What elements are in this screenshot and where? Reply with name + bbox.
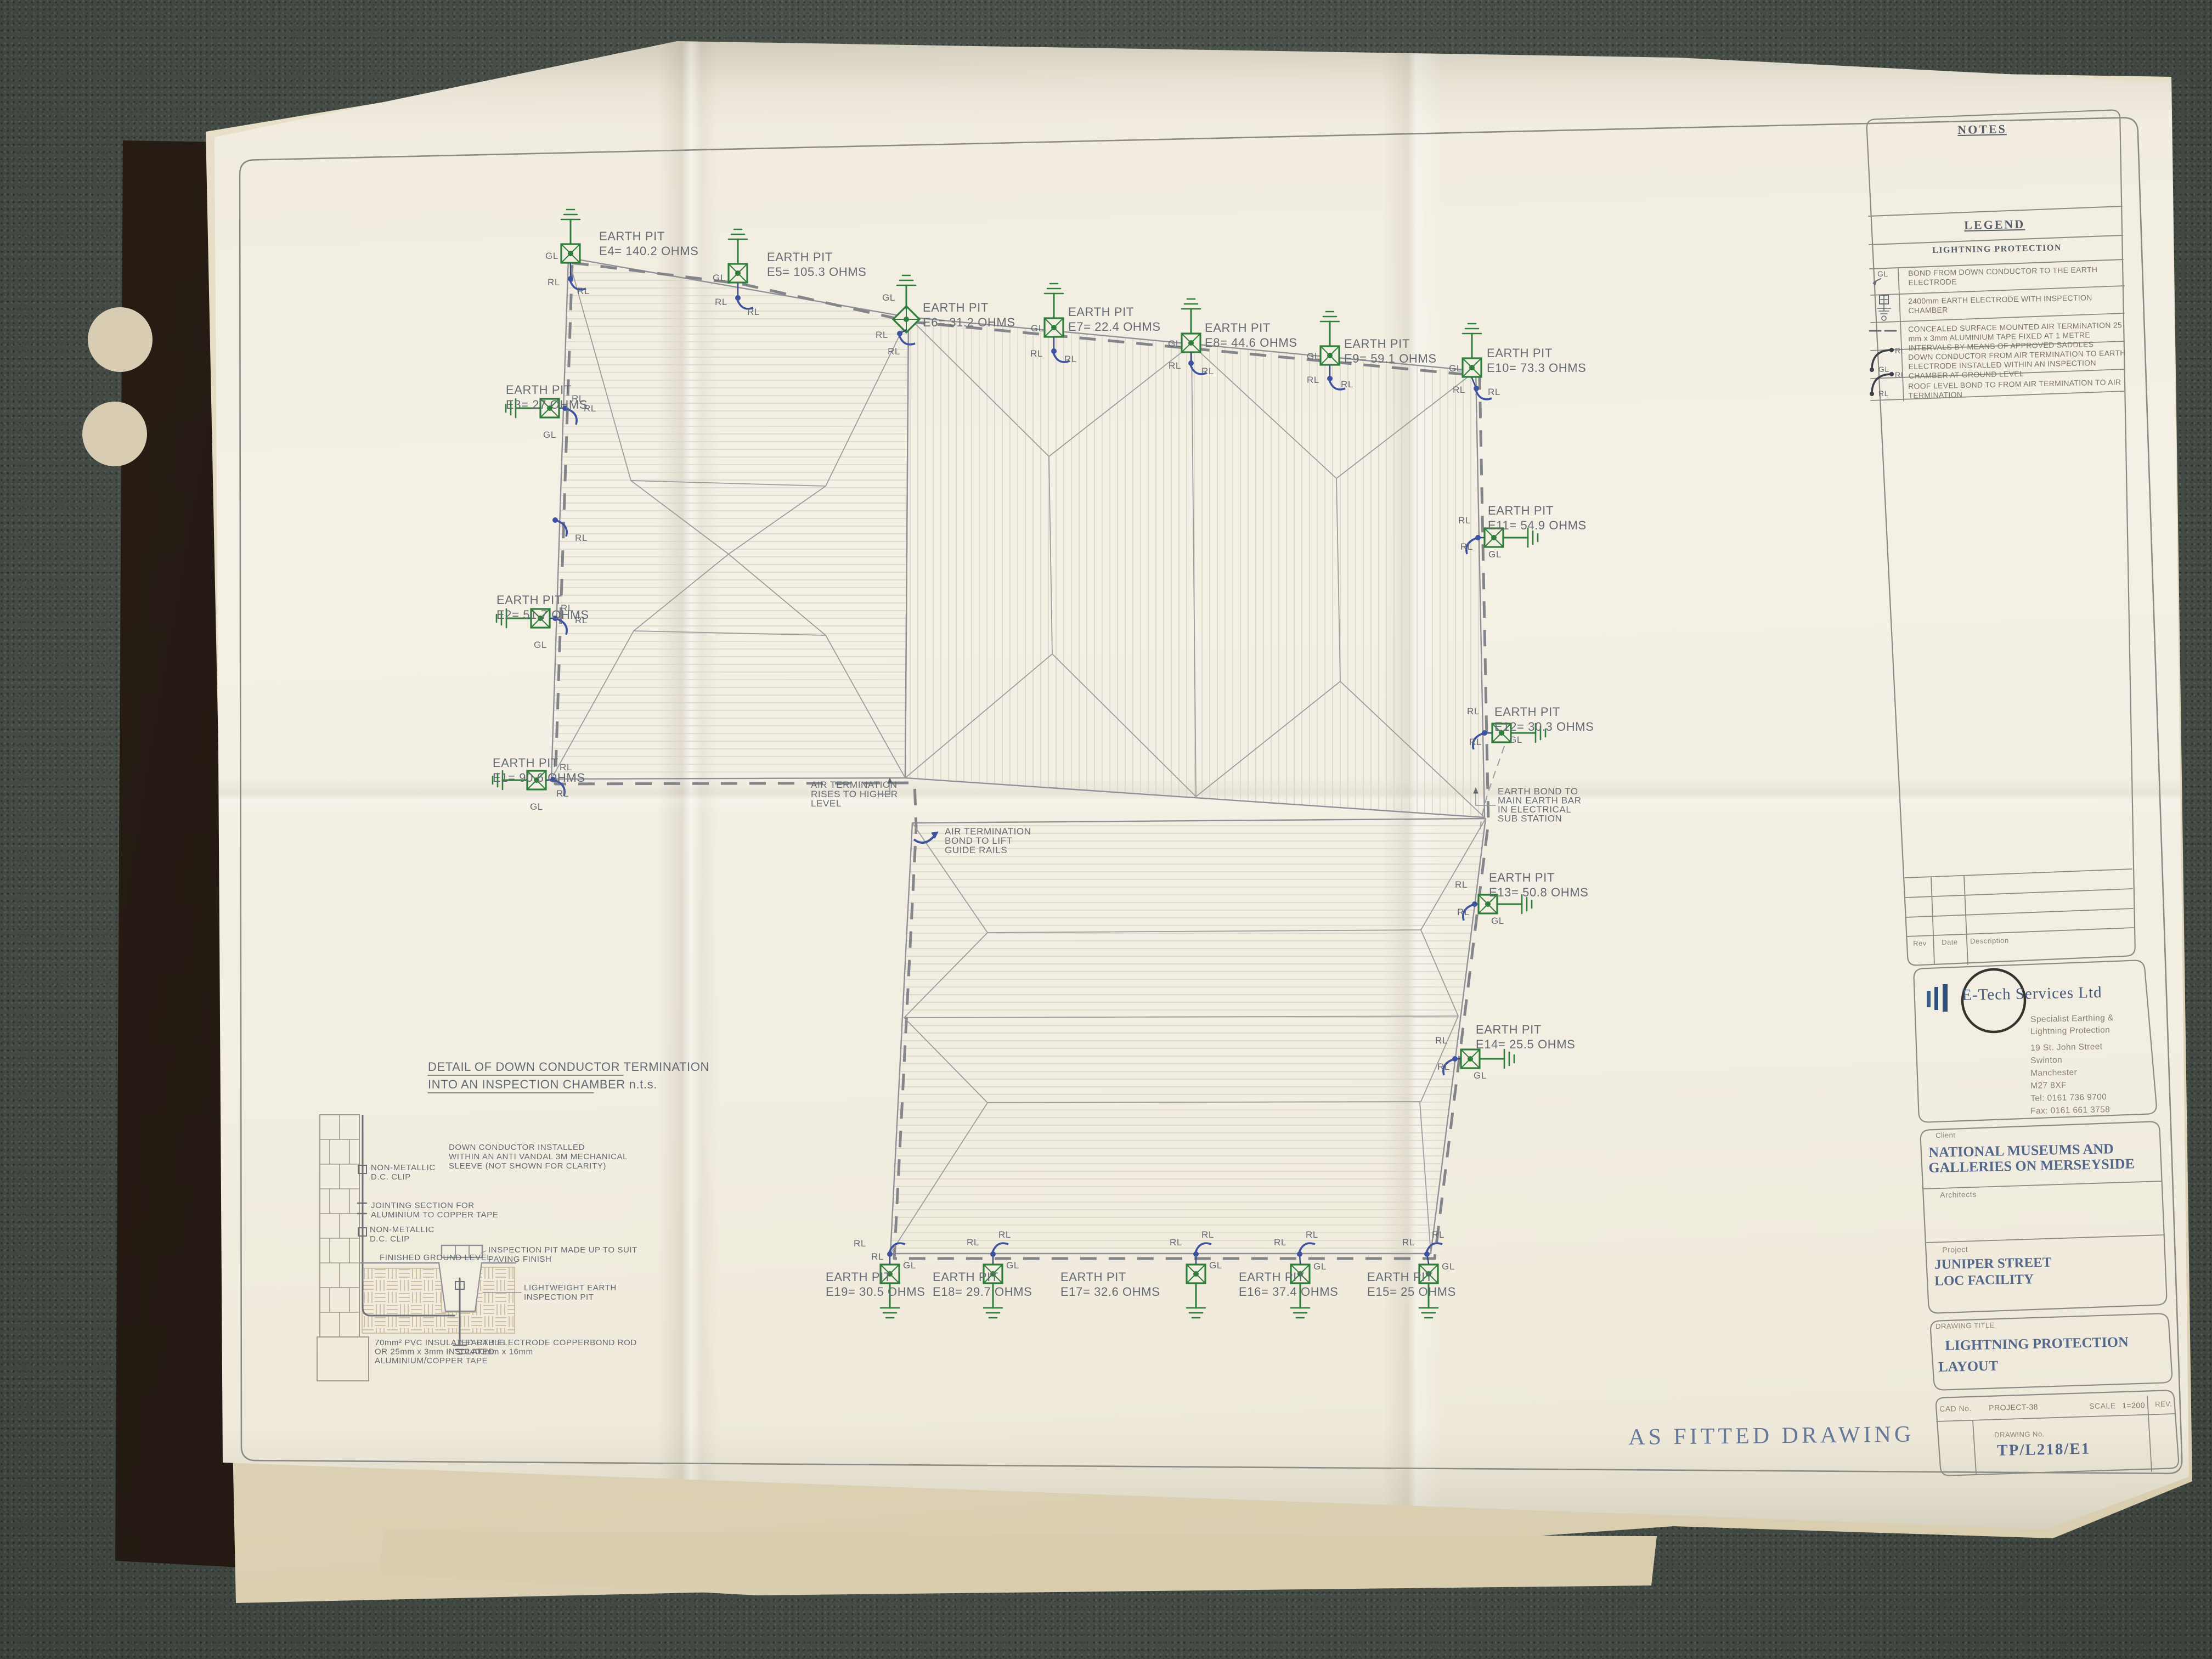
- svg-text:E13= 50.8 OHMS: E13= 50.8 OHMS: [1489, 885, 1588, 899]
- svg-text:RL: RL: [1064, 354, 1077, 364]
- svg-text:GL: GL: [1313, 1261, 1327, 1272]
- svg-text:WITHIN AN ANTI VANDAL 3M MECHA: WITHIN AN ANTI VANDAL 3M MECHANICAL: [449, 1152, 628, 1161]
- svg-text:EARTH PIT: EARTH PIT: [1367, 1270, 1433, 1284]
- svg-text:RL: RL: [967, 1237, 979, 1248]
- svg-text:EARTH PIT: EARTH PIT: [1487, 346, 1553, 360]
- drawing-no-label: DRAWING No.: [1994, 1430, 2045, 1439]
- svg-text:GL: GL: [1442, 1261, 1455, 1272]
- company-address-line: 19 St. John Street: [2030, 1042, 2103, 1053]
- svg-text:E16= 37.4 OHMS: E16= 37.4 OHMS: [1239, 1285, 1338, 1299]
- svg-text:NON-METALLIC: NON-METALLIC: [371, 1163, 436, 1172]
- svg-text:RL: RL: [577, 286, 590, 296]
- svg-text:NON-METALLIC: NON-METALLIC: [370, 1225, 435, 1234]
- company-address-line: Fax: 0161 661 3758: [2030, 1105, 2110, 1116]
- svg-text:RL: RL: [854, 1238, 866, 1249]
- cad-no-value: PROJECT-38: [1989, 1402, 2038, 1412]
- svg-text:E19= 30.5 OHMS: E19= 30.5 OHMS: [826, 1285, 925, 1299]
- date-column-header: Date: [1942, 938, 1958, 946]
- svg-text:EARTH PIT: EARTH PIT: [1060, 1270, 1126, 1284]
- svg-text:RL: RL: [1432, 1229, 1444, 1240]
- svg-text:GL: GL: [1878, 365, 1889, 374]
- svg-text:EARTH PIT: EARTH PIT: [1205, 321, 1271, 335]
- svg-text:EARTH PIT: EARTH PIT: [1239, 1270, 1305, 1284]
- svg-text:SLEEVE (NOT SHOWN FOR CLARITY: SLEEVE (NOT SHOWN FOR CLARITY): [449, 1161, 606, 1171]
- svg-text:INTO AN INSPECTION CHAMBER n.t: INTO AN INSPECTION CHAMBER n.t.s.: [428, 1077, 657, 1091]
- svg-text:D.C. CLIP: D.C. CLIP: [370, 1234, 410, 1244]
- drawing-linework: GLRLGLRLRLGLRLRLEARTH PITE1= 90.6 OHMSGL…: [0, 0, 2212, 1659]
- svg-text:RL: RL: [747, 307, 760, 317]
- svg-text:RL: RL: [715, 297, 727, 307]
- roof-plan: GLRLRLEARTH PITE1= 90.6 OHMSGLRLRLEARTH …: [493, 210, 1594, 1318]
- notes-title: NOTES: [1957, 122, 2007, 137]
- svg-text:E15= 25 OHMS: E15= 25 OHMS: [1367, 1285, 1456, 1299]
- gl-bond-icon: GL: [1873, 269, 1888, 285]
- svg-text:RL: RL: [1435, 1035, 1448, 1046]
- svg-text:GUIDE RAILS: GUIDE RAILS: [945, 845, 1007, 855]
- svg-text:EARTH PIT: EARTH PIT: [1344, 337, 1410, 351]
- svg-text:E1= 90.6 OHMS: E1= 90.6 OHMS: [493, 771, 585, 785]
- svg-text:GL: GL: [713, 273, 726, 283]
- project-name-line1: JUNIPER STREET: [1934, 1255, 2052, 1273]
- client-label: Client: [1936, 1131, 1956, 1139]
- svg-text:2400mm x 16mm: 2400mm x 16mm: [465, 1347, 533, 1357]
- svg-text:RL: RL: [1402, 1237, 1415, 1248]
- svg-text:GL: GL: [882, 292, 895, 303]
- company-address-line: Swinton: [2030, 1056, 2062, 1066]
- detail-drawing: DETAIL OF DOWN CONDUCTOR TERMINATIONINTO…: [317, 1060, 709, 1381]
- svg-text:GL: GL: [534, 640, 547, 650]
- company-address-line: M27 8XF: [2030, 1081, 2067, 1091]
- svg-text:RL: RL: [1274, 1237, 1286, 1248]
- svg-text:ALUMINIUM/COPPER TAPE: ALUMINIUM/COPPER TAPE: [375, 1356, 488, 1365]
- svg-text:EARTH PIT: EARTH PIT: [923, 301, 989, 314]
- svg-text:EARTH PIT: EARTH PIT: [1068, 305, 1134, 319]
- svg-text:EARTH PIT: EARTH PIT: [826, 1270, 891, 1284]
- svg-text:JOINTING SECTION FOR: JOINTING SECTION FOR: [371, 1201, 475, 1210]
- svg-text:RL: RL: [1455, 879, 1468, 890]
- svg-text:RL: RL: [1306, 1229, 1318, 1240]
- svg-text:DETAIL OF DOWN CONDUCTOR TERMI: DETAIL OF DOWN CONDUCTOR TERMINATION: [428, 1060, 709, 1074]
- earth-electrode-icon: [1877, 295, 1891, 320]
- svg-text:INSPECTION PIT: INSPECTION PIT: [524, 1293, 594, 1302]
- svg-text:LIGHTWEIGHT EARTH: LIGHTWEIGHT EARTH: [524, 1283, 617, 1293]
- svg-text:EARTH PIT: EARTH PIT: [767, 250, 833, 264]
- svg-text:GL: GL: [1307, 351, 1320, 362]
- svg-text:E4= 140.2 OHMS: E4= 140.2 OHMS: [599, 244, 698, 258]
- architects-label: Architects: [1940, 1190, 1977, 1199]
- rev-column-header: Rev: [1913, 939, 1927, 947]
- svg-text:GL: GL: [1488, 549, 1502, 560]
- svg-text:E11= 54.9 OHMS: E11= 54.9 OHMS: [1488, 518, 1587, 532]
- earth-pit-E1: GLRLRLEARTH PITE1= 90.6 OHMS: [493, 756, 585, 812]
- svg-text:E6= 31.2 OHMS: E6= 31.2 OHMS: [923, 315, 1015, 329]
- roof-bond-icon: RLRL: [1870, 370, 1905, 398]
- svg-text:RL: RL: [1469, 737, 1482, 747]
- svg-text:RL: RL: [556, 788, 569, 799]
- drawing-title-line2: LAYOUT: [1938, 1358, 1998, 1375]
- svg-text:RL: RL: [1488, 387, 1500, 397]
- svg-text:EARTH PIT: EARTH PIT: [1489, 871, 1555, 884]
- svg-text:RL: RL: [1170, 1237, 1182, 1248]
- svg-text:GL: GL: [1491, 916, 1504, 926]
- legend-row: DOWN CONDUCTOR FROM AIR TERMINATION TO E…: [1908, 348, 2127, 381]
- as-fitted-stamp: AS FITTED DRAWING: [1628, 1421, 1914, 1451]
- project-name-line2: LOC FACILITY: [1934, 1272, 2034, 1289]
- svg-text:E14= 25.5 OHMS: E14= 25.5 OHMS: [1476, 1037, 1575, 1051]
- company-address-line: Manchester: [2030, 1068, 2077, 1079]
- brick-wall: [317, 1115, 369, 1381]
- svg-text:GL: GL: [1006, 1260, 1019, 1271]
- svg-text:RL: RL: [1453, 385, 1465, 395]
- svg-text:INSPECTION PIT MADE UP TO SUIT: INSPECTION PIT MADE UP TO SUIT: [488, 1245, 637, 1255]
- svg-text:E10= 73.3 OHMS: E10= 73.3 OHMS: [1487, 361, 1586, 375]
- svg-text:EARTH PIT: EARTH PIT: [493, 756, 558, 770]
- svg-text:RL: RL: [1878, 389, 1889, 398]
- svg-text:GL: GL: [1509, 735, 1522, 745]
- svg-text:RL: RL: [1437, 1062, 1450, 1072]
- scale-value: 1=200: [2122, 1401, 2145, 1410]
- svg-text:GL: GL: [1449, 363, 1462, 374]
- svg-text:E7= 22.4 OHMS: E7= 22.4 OHMS: [1068, 320, 1161, 334]
- svg-text:GL: GL: [530, 802, 543, 812]
- svg-text:RL: RL: [998, 1229, 1011, 1240]
- company-name: E-Tech Services Ltd: [1962, 984, 2102, 1005]
- svg-text:RL: RL: [1030, 348, 1043, 359]
- svg-text:EARTH PIT: EARTH PIT: [933, 1270, 998, 1284]
- svg-text:RL: RL: [1457, 907, 1470, 917]
- svg-text:GL: GL: [1168, 338, 1181, 349]
- legend-row: CONCEALED SURFACE MOUNTED AIR TERMINATIO…: [1908, 320, 2127, 353]
- description-column-header: Description: [1970, 936, 2009, 945]
- svg-text:E3= 27 OHMS: E3= 27 OHMS: [506, 398, 588, 411]
- svg-text:RL: RL: [1460, 541, 1473, 552]
- svg-text:ALUMINIUM TO COPPER TAPE: ALUMINIUM TO COPPER TAPE: [371, 1210, 499, 1220]
- svg-text:EARTH ELECTRODE COPPERBOND ROD: EARTH ELECTRODE COPPERBOND ROD: [465, 1338, 637, 1347]
- svg-text:RL: RL: [888, 346, 900, 357]
- svg-text:RL: RL: [1307, 375, 1319, 385]
- svg-text:EARTH PIT: EARTH PIT: [506, 383, 572, 397]
- svg-text:RL: RL: [1201, 366, 1214, 376]
- svg-text:D.C. CLIP: D.C. CLIP: [371, 1172, 411, 1182]
- svg-text:E2= 51.7 OHMS: E2= 51.7 OHMS: [496, 608, 589, 622]
- svg-text:RL: RL: [871, 1251, 884, 1262]
- company-address-line: Tel: 0161 736 9700: [2030, 1092, 2107, 1104]
- svg-text:E12= 30.3 OHMS: E12= 30.3 OHMS: [1494, 720, 1594, 733]
- photo-scene: GLRLGLRLRLGLRLRLEARTH PITE1= 90.6 OHMSGL…: [0, 0, 2212, 1659]
- drawing-title-label: DRAWING TITLE: [1936, 1321, 1995, 1330]
- drawing-no-value: TP/L218/E1: [1997, 1440, 2090, 1460]
- svg-text:LEVEL: LEVEL: [811, 798, 842, 809]
- svg-text:PAVING FINISH: PAVING FINISH: [488, 1255, 552, 1264]
- svg-text:RL: RL: [1458, 515, 1471, 526]
- svg-text:EARTH PIT: EARTH PIT: [496, 593, 562, 607]
- svg-text:RL: RL: [548, 277, 560, 287]
- svg-text:RL: RL: [1169, 360, 1181, 371]
- svg-text:SUB STATION: SUB STATION: [1498, 814, 1562, 824]
- company-tagline-2: Lightning Protection: [2030, 1025, 2110, 1037]
- svg-text:DOWN CONDUCTOR INSTALLED: DOWN CONDUCTOR INSTALLED: [449, 1143, 585, 1152]
- svg-text:EARTH PIT: EARTH PIT: [1488, 504, 1554, 517]
- project-label: Project: [1942, 1245, 1968, 1254]
- svg-text:E8= 44.6 OHMS: E8= 44.6 OHMS: [1205, 336, 1297, 349]
- svg-text:RL: RL: [1895, 370, 1905, 379]
- svg-text:GL: GL: [903, 1260, 916, 1271]
- svg-text:RL: RL: [575, 533, 588, 543]
- svg-text:E9= 59.1 OHMS: E9= 59.1 OHMS: [1344, 352, 1437, 365]
- svg-text:RL: RL: [1341, 379, 1353, 390]
- cad-no-label: CAD No.: [1939, 1404, 1972, 1413]
- svg-text:GL: GL: [1474, 1070, 1487, 1081]
- svg-text:EARTH PIT: EARTH PIT: [1494, 705, 1560, 719]
- svg-text:FINISHED GROUND LEVEL: FINISHED GROUND LEVEL: [380, 1253, 492, 1262]
- svg-text:RL: RL: [876, 330, 888, 340]
- svg-text:GL: GL: [1031, 323, 1044, 334]
- svg-text:RL: RL: [1467, 706, 1480, 716]
- legend-title: LEGEND: [1964, 217, 2025, 233]
- svg-text:E17= 32.6 OHMS: E17= 32.6 OHMS: [1060, 1285, 1160, 1299]
- svg-text:E5= 105.3 OHMS: E5= 105.3 OHMS: [767, 265, 866, 279]
- svg-text:EARTH PIT: EARTH PIT: [1476, 1023, 1542, 1036]
- svg-text:GL: GL: [543, 430, 556, 440]
- svg-text:GL: GL: [1877, 269, 1888, 278]
- rev-label: REV.: [2155, 1400, 2172, 1408]
- svg-text:EARTH PIT: EARTH PIT: [599, 229, 665, 243]
- svg-text:RL: RL: [1201, 1229, 1214, 1240]
- scale-label: SCALE: [2089, 1401, 2116, 1410]
- svg-text:RL: RL: [1895, 346, 1905, 355]
- svg-text:GL: GL: [545, 251, 558, 261]
- company-tagline-1: Specialist Earthing &: [2030, 1013, 2114, 1025]
- svg-text:GL: GL: [1209, 1260, 1222, 1271]
- svg-text:E18= 29.7 OHMS: E18= 29.7 OHMS: [933, 1285, 1032, 1299]
